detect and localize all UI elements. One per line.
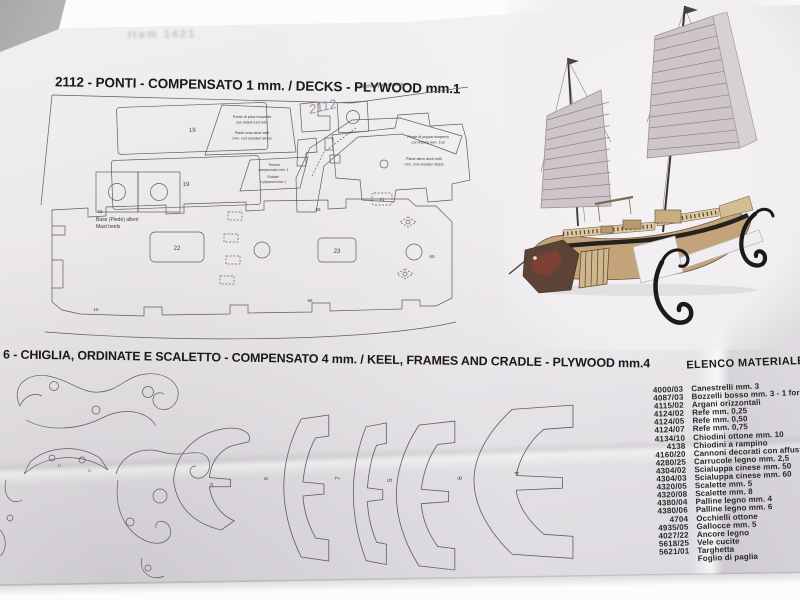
svg-text:Mast heels: Mast heels (96, 224, 121, 230)
svg-text:5: 5 (387, 478, 394, 482)
svg-text:15: 15 (93, 307, 99, 312)
svg-text:15: 15 (97, 209, 103, 214)
svg-text:Ponte di poppa ricoperto: Ponte di poppa ricoperto (407, 135, 448, 139)
svg-text:7: 7 (335, 476, 342, 480)
svg-text:Plank bow deck with: Plank bow deck with (235, 131, 269, 135)
mast-heels-part: Base (Piede) alberi Mast heels (96, 172, 180, 230)
svg-text:11: 11 (57, 463, 62, 468)
ship-photo (505, 0, 800, 350)
svg-text:6: 6 (457, 476, 464, 480)
svg-text:Base (Piede) alberi Mast fe: Base (Piede) alberi Mast feet (356, 81, 409, 89)
rudder-fin (579, 248, 609, 288)
bow-eye (533, 256, 537, 260)
svg-text:con listello mm. 1x3: con listello mm. 1x3 (411, 141, 444, 145)
panel-border-left (41, 95, 52, 205)
svg-text:in plywood mm.1: in plywood mm.1 (260, 180, 286, 184)
hull-frames: 10 8 7 5 6 4 (174, 405, 573, 570)
svg-text:10: 10 (209, 482, 214, 488)
svg-text:Ponte di prua ricoperto: Ponte di prua ricoperto (233, 115, 271, 119)
svg-text:Timone: Timone (268, 163, 280, 167)
main-deck-part: 22 23 21 66 66 65 15 15 (45, 193, 456, 339)
deckhouse (655, 210, 681, 223)
svg-text:compensato mm. 1.: compensato mm. 1. (259, 168, 290, 172)
deck-part-19b: 19 (111, 155, 261, 209)
svg-text:Plank stern deck with: Plank stern deck with (406, 157, 442, 161)
svg-text:con listelli 1x3 mm.: con listelli 1x3 mm. (236, 121, 268, 125)
svg-text:23: 23 (334, 249, 341, 255)
svg-text:8: 8 (264, 477, 270, 480)
svg-text:66: 66 (315, 207, 321, 212)
svg-text:mm. 1x3 wooden strips: mm. 1x3 wooden strips (232, 137, 271, 141)
svg-text:mm. 1x3 wooden strips: mm. 1x3 wooden strips (404, 163, 443, 167)
bow-deck-part: Ponte di prua ricoperto con listelli 1x3… (205, 105, 296, 155)
svg-text:11: 11 (87, 468, 92, 473)
photographed-plan-sheet: Item 1421 2112 - PONTI - COMPENSATO 1 mm… (0, 0, 800, 600)
svg-text:19: 19 (189, 128, 197, 134)
svg-text:66: 66 (307, 298, 313, 303)
panel-border-top (52, 87, 468, 103)
materials-panel: ELENCO MATERIALE 4000/03Canestrelli mm. … (636, 355, 800, 566)
deck-part-19a: 19 (116, 102, 268, 154)
svg-text:19: 19 (183, 182, 191, 188)
svg-text:Rudder: Rudder (267, 175, 279, 179)
svg-text:Base (Piede) alberi: Base (Piede) alberi (96, 217, 139, 223)
svg-text:22: 22 (174, 246, 181, 252)
svg-text:21: 21 (379, 197, 385, 202)
svg-text:4: 4 (514, 471, 521, 475)
materials-list: 4000/03Canestrelli mm. 34087/03Bozzelli … (637, 381, 800, 566)
cradle-scroll-parts: 11 11 (0, 374, 210, 578)
sheet-code-handwritten: 2112 (306, 96, 338, 117)
svg-text:65: 65 (429, 254, 435, 259)
